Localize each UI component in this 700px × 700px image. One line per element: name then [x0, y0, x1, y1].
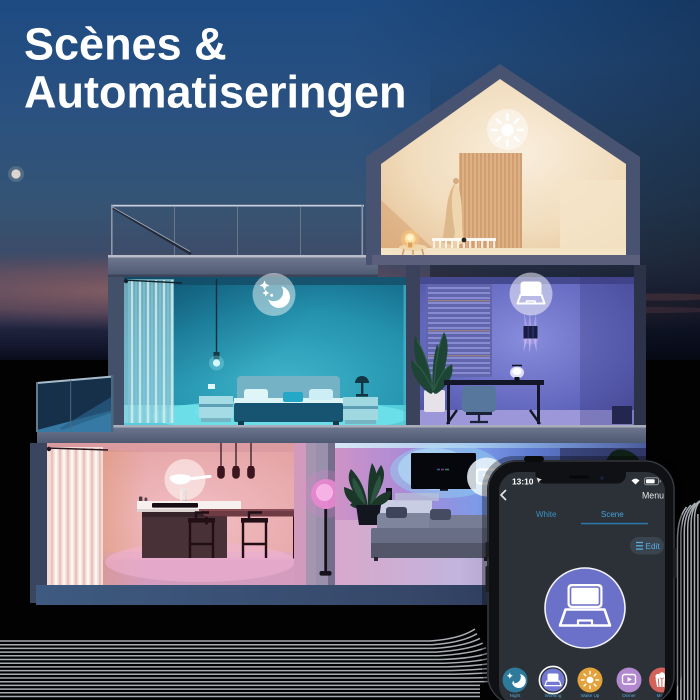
svg-text:Automatiseringen: Automatiseringen [24, 67, 407, 118]
svg-text:Dinner: Dinner [622, 693, 636, 698]
svg-text:Wake Up: Wake Up [581, 693, 600, 698]
svg-text:Scene: Scene [601, 510, 624, 519]
svg-text:Edit: Edit [646, 542, 661, 551]
svg-text:Night: Night [510, 693, 521, 698]
svg-text:White: White [536, 510, 557, 519]
svg-text:Working: Working [545, 693, 562, 698]
svg-text:Scènes &: Scènes & [24, 19, 227, 70]
svg-text:13:10: 13:10 [512, 477, 534, 487]
svg-text:Menu: Menu [642, 491, 664, 501]
